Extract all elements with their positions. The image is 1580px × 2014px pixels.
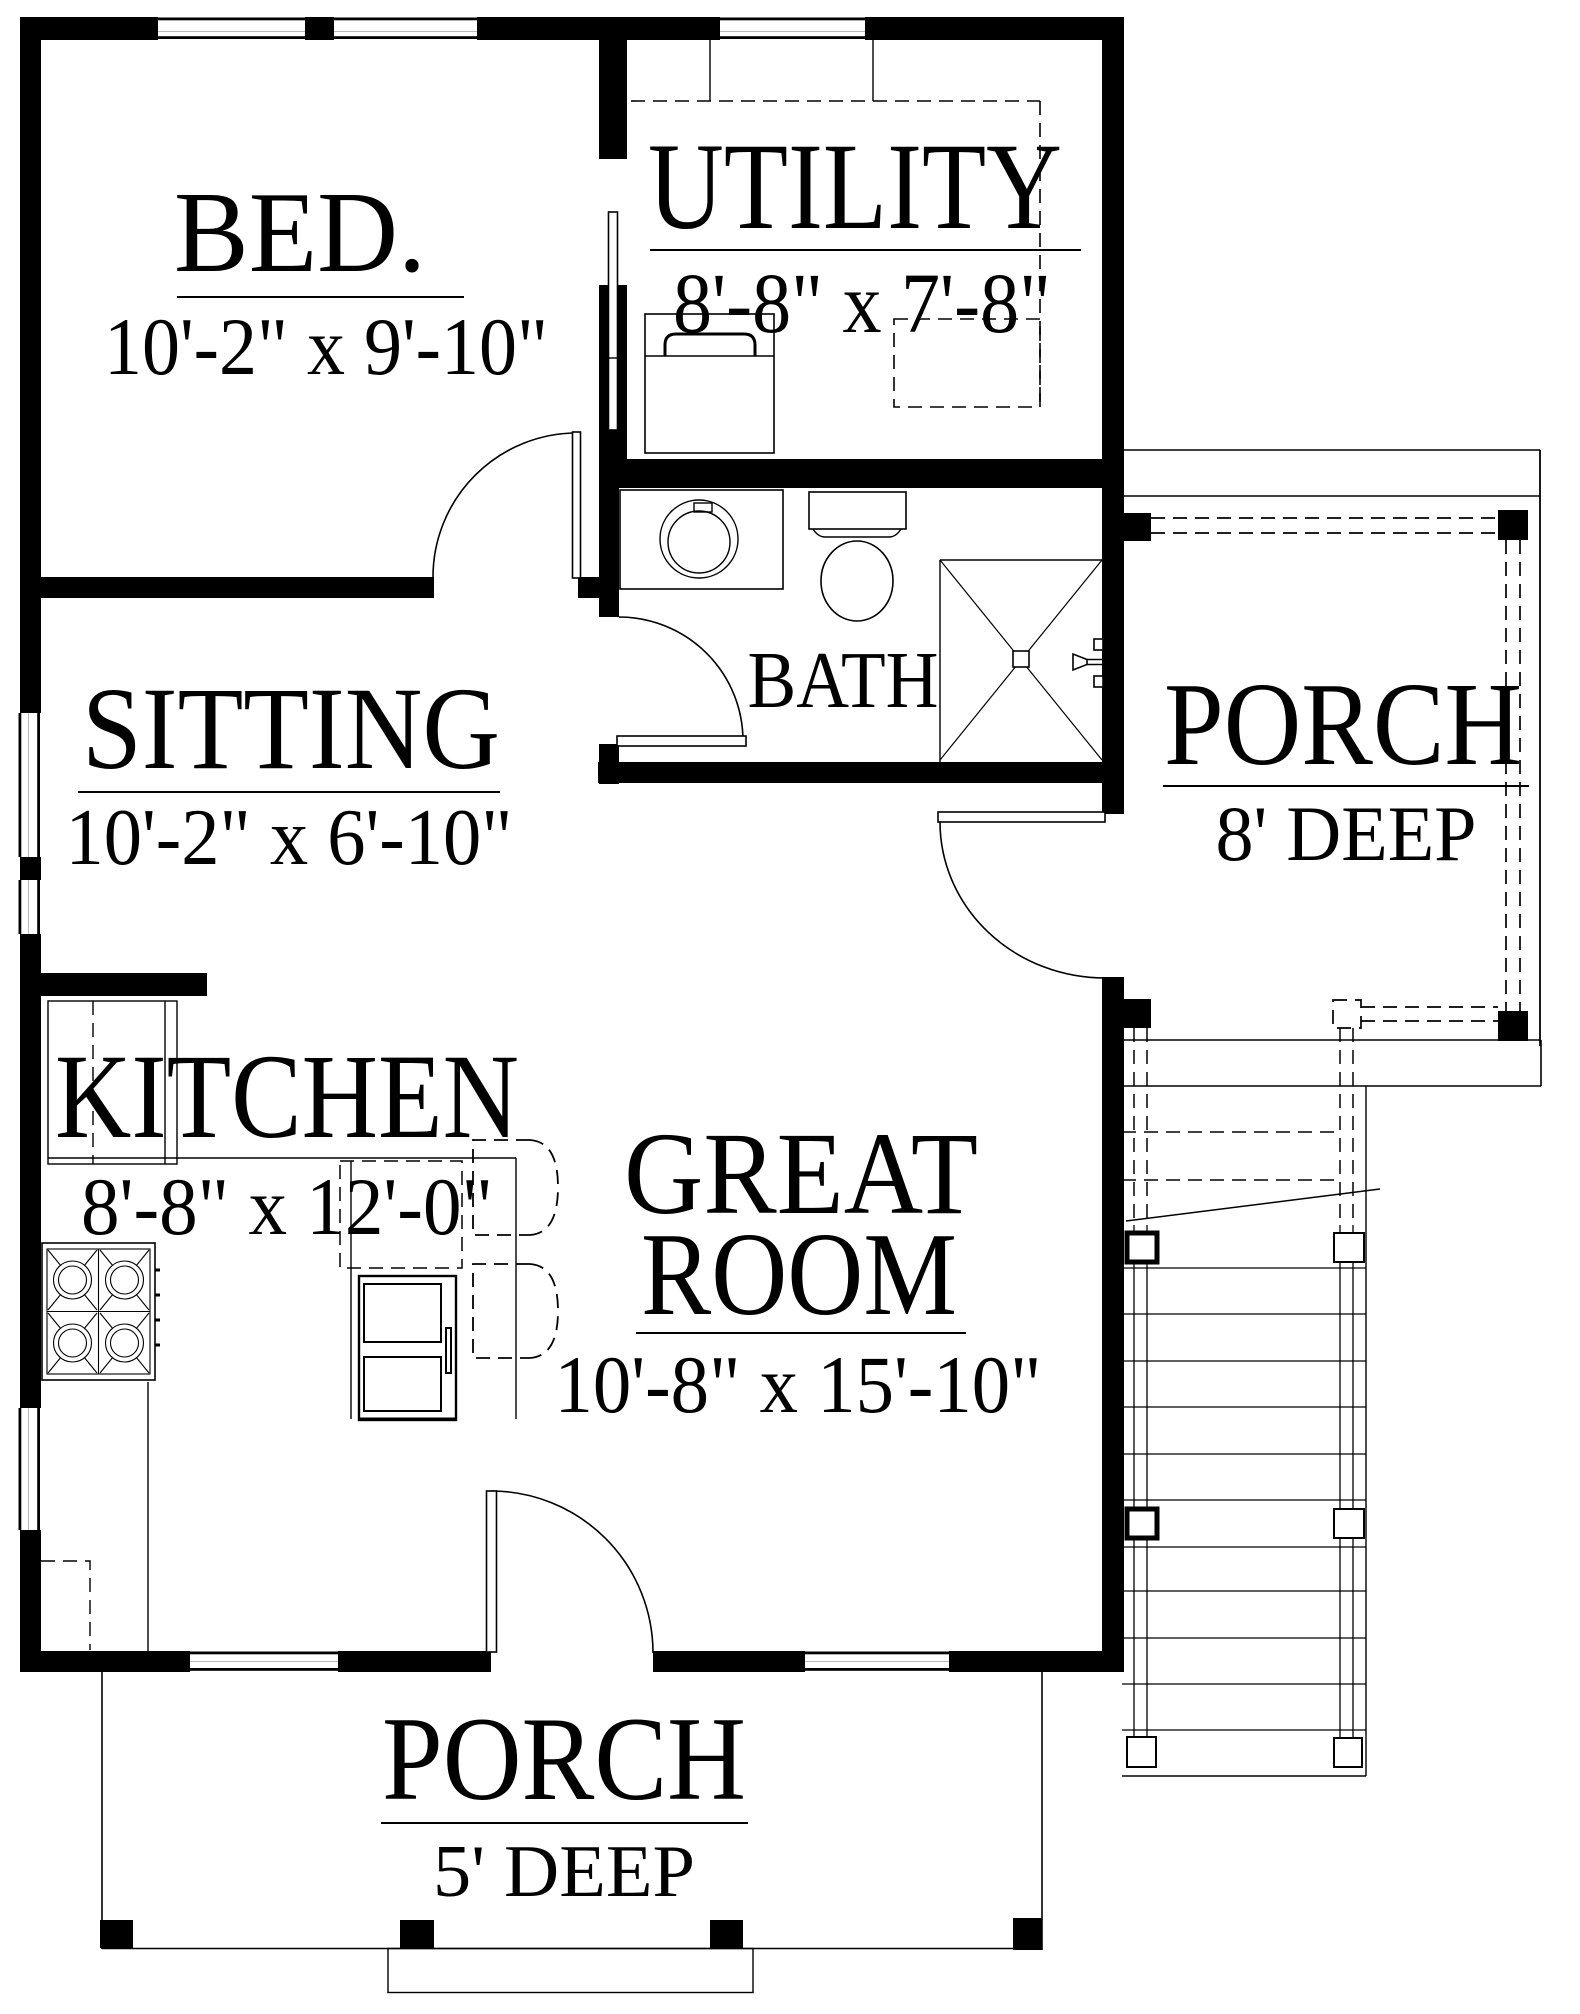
- svg-text:PORCH: PORCH: [1164, 658, 1522, 790]
- svg-text:UTILITY: UTILITY: [648, 118, 1062, 255]
- svg-text:8'-8" x 7'-8": 8'-8" x 7'-8": [673, 255, 1051, 351]
- svg-text:10'-2" x 9'-10": 10'-2" x 9'-10": [104, 301, 548, 392]
- svg-text:BATH: BATH: [748, 637, 939, 725]
- svg-text:8'-8" x 12'-0": 8'-8" x 12'-0": [81, 1161, 493, 1252]
- svg-text:PORCH: PORCH: [382, 1692, 746, 1825]
- svg-text:BED.: BED.: [174, 169, 426, 296]
- svg-text:10'-2" x 6'-10": 10'-2" x 6'-10": [66, 794, 513, 882]
- svg-text:KITCHEN: KITCHEN: [55, 1030, 519, 1164]
- svg-text:ROOM: ROOM: [641, 1208, 957, 1340]
- svg-text:SITTING: SITTING: [82, 663, 500, 794]
- svg-text:10'-8" x 15'-10": 10'-8" x 15'-10": [555, 1339, 1042, 1430]
- svg-text:8' DEEP: 8' DEEP: [1216, 790, 1477, 877]
- svg-text:5' DEEP: 5' DEEP: [433, 1831, 695, 1913]
